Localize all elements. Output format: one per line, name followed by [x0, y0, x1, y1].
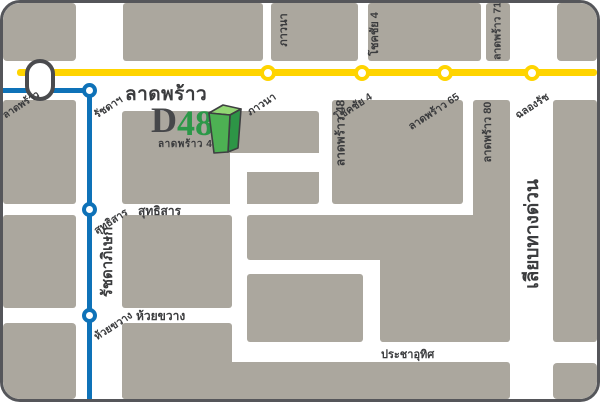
road: [230, 153, 332, 172]
map-block: [123, 3, 263, 61]
expressway-road-label: เลียบทางด่วน: [517, 179, 547, 289]
road: [230, 172, 247, 204]
map-block: [3, 215, 76, 308]
map-block: [553, 100, 597, 342]
station-marker-ratchada: [82, 83, 97, 98]
station-label-ratchada: รัชดาฯ: [90, 91, 126, 122]
station-marker-huaikhwang: [82, 308, 97, 323]
map-block: [3, 3, 76, 61]
map-block: [553, 363, 597, 399]
huai-khwang-road-label: ห้วยขวาง: [136, 307, 185, 326]
map-block: [247, 274, 363, 342]
map-block: [3, 323, 76, 399]
station-marker-latphrao65: [437, 65, 453, 81]
yellow-road-line: [17, 69, 597, 76]
station-marker-sutthisan: [82, 202, 97, 217]
soi-phawana-label: ภาวนา: [274, 13, 292, 46]
station-marker-phawana: [260, 65, 276, 81]
soi-80-label: ลาดพร้าว 80: [478, 102, 496, 163]
map-block: [368, 3, 481, 61]
sutthisan-road-label: สุทธิสาร: [138, 202, 181, 221]
map-block: [380, 215, 510, 342]
map-block: [557, 3, 597, 61]
station-marker-chalongrat: [524, 65, 540, 81]
blue-mrt-line-vertical: [87, 90, 92, 399]
location-map: ลาดพร้าว สุทธิสาร ห้วยขวาง ประชาอุทิศ ภา…: [0, 0, 600, 402]
soi-71-label: ลาดพร้าว 71: [489, 2, 506, 60]
soi-chokchai4-label: โชคชัย 4: [365, 12, 383, 56]
station-marker-chokchai4: [354, 65, 370, 81]
station-label-chalongrat: ฉลองรัช: [512, 88, 553, 123]
logo-letter: D: [151, 100, 177, 140]
pracha-uthit-road-label: ประชาอุทิศ: [381, 345, 434, 363]
building-3d-icon: [206, 103, 244, 155]
map-block: [122, 215, 232, 308]
map-block: [122, 362, 510, 399]
